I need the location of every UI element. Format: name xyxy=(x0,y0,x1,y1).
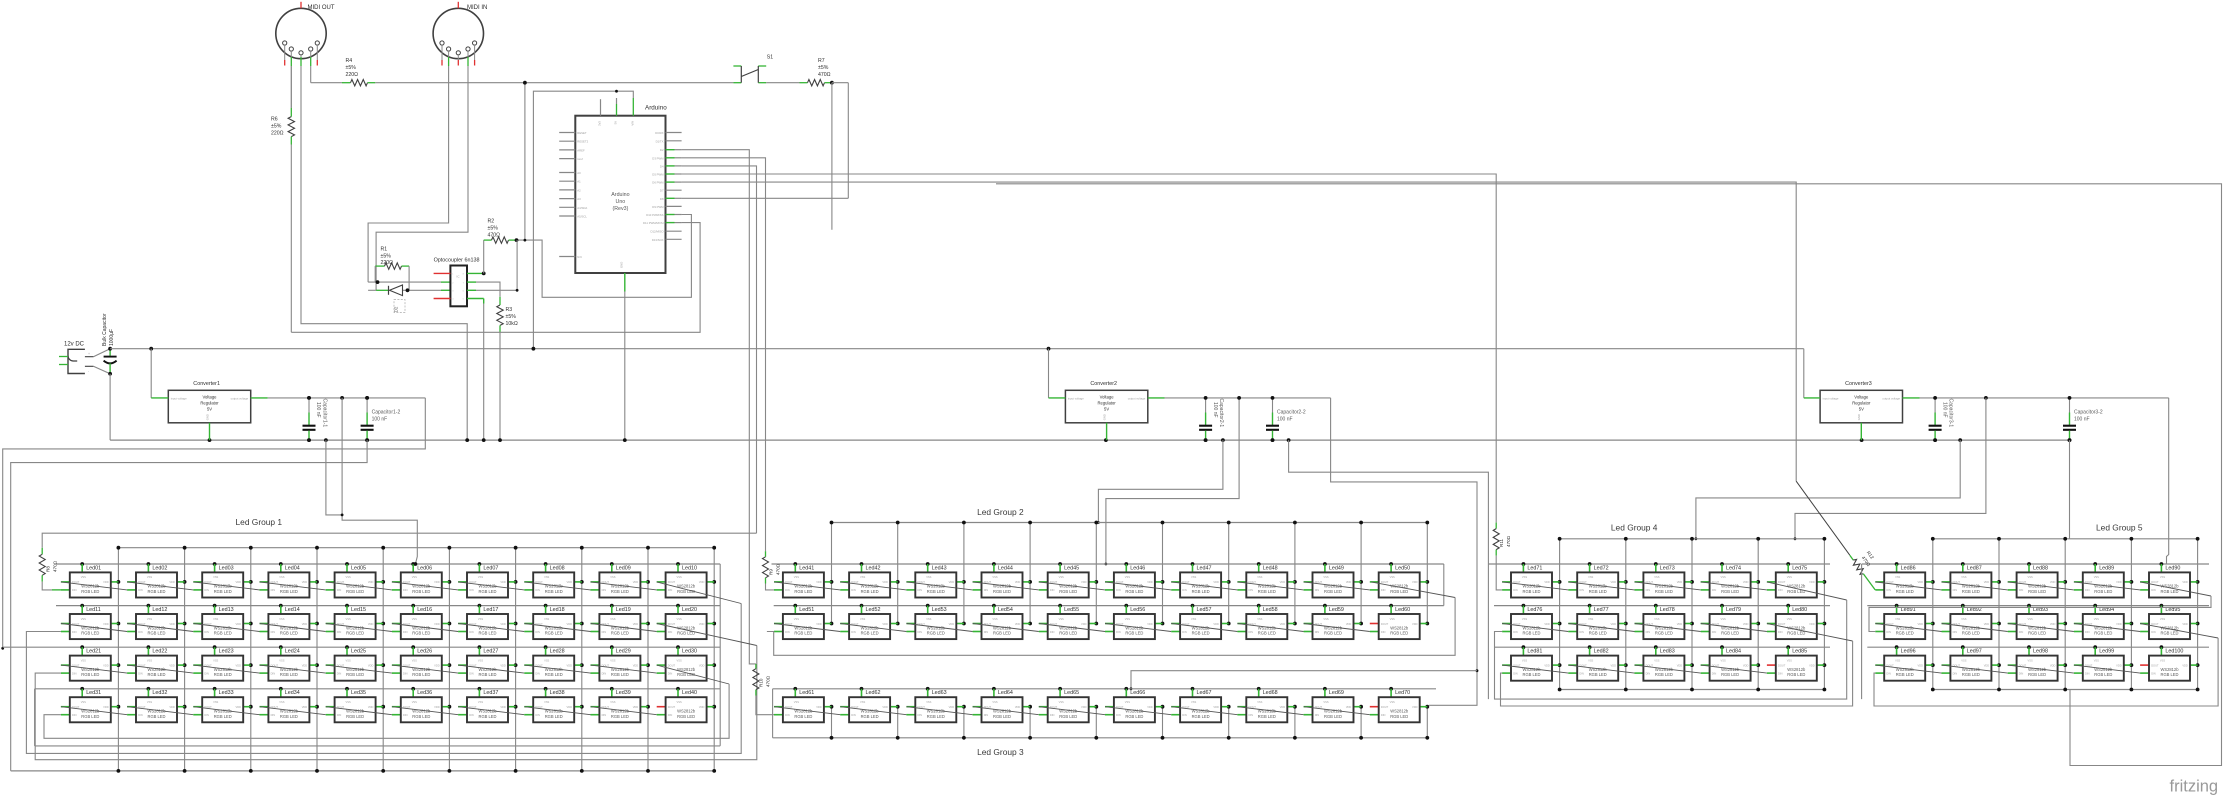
svg-text:RGB LED: RGB LED xyxy=(2094,672,2112,677)
svg-text:D1/TX: D1/TX xyxy=(656,139,664,143)
svg-text:VDD: VDD xyxy=(1147,580,1153,584)
svg-text:Voltage: Voltage xyxy=(1854,395,1869,400)
svg-text:VDD: VDD xyxy=(103,580,109,584)
svg-text:VSS: VSS xyxy=(1191,575,1196,579)
svg-text:220Ω: 220Ω xyxy=(381,260,394,266)
svg-text:Led18: Led18 xyxy=(550,607,565,613)
svg-text:DIN: DIN xyxy=(1886,671,1891,675)
svg-text:RGB LED: RGB LED xyxy=(611,589,629,594)
svg-text:VSS: VSS xyxy=(610,575,615,579)
svg-text:VSS: VSS xyxy=(610,658,615,662)
svg-text:R6: R6 xyxy=(271,117,278,123)
svg-text:5V: 5V xyxy=(614,121,618,125)
svg-text:RGB LED: RGB LED xyxy=(611,672,629,677)
svg-text:VDD: VDD xyxy=(1346,705,1352,709)
svg-text:DIN: DIN xyxy=(1953,630,1958,634)
svg-text:VDD: VDD xyxy=(699,663,705,667)
svg-text:VSS: VSS xyxy=(610,700,615,704)
svg-text:RGB LED: RGB LED xyxy=(1655,672,1673,677)
svg-text:DIN: DIN xyxy=(1953,671,1958,675)
svg-text:VDD: VDD xyxy=(1984,663,1990,667)
svg-text:±5%: ±5% xyxy=(506,314,517,320)
svg-text:Capacitor3-1: Capacitor3-1 xyxy=(1948,399,1954,428)
svg-text:VSS: VSS xyxy=(213,658,218,662)
svg-text:VDD: VDD xyxy=(1081,705,1087,709)
svg-text:DIN: DIN xyxy=(1953,588,1958,592)
svg-text:VDD: VDD xyxy=(302,705,308,709)
svg-text:VDD: VDD xyxy=(567,705,573,709)
svg-text:Led45: Led45 xyxy=(1064,565,1079,571)
svg-text:100 nF: 100 nF xyxy=(315,402,321,418)
svg-text:Capacitor2-2: Capacitor2-2 xyxy=(1277,410,1306,416)
svg-text:RGB LED: RGB LED xyxy=(346,631,364,636)
svg-text:470Ω: 470Ω xyxy=(1506,535,1511,547)
svg-text:VSS: VSS xyxy=(478,575,483,579)
svg-text:DIN: DIN xyxy=(1249,713,1254,717)
svg-text:Led15: Led15 xyxy=(351,607,366,613)
svg-text:VDD: VDD xyxy=(1544,580,1550,584)
svg-text:Led30: Led30 xyxy=(682,649,697,655)
svg-text:DIN: DIN xyxy=(668,713,673,717)
svg-text:Led21: Led21 xyxy=(86,649,101,655)
svg-text:VSS: VSS xyxy=(2027,658,2032,662)
svg-text:±5%: ±5% xyxy=(818,65,829,71)
svg-text:VSS: VSS xyxy=(1323,575,1328,579)
svg-text:Led58: Led58 xyxy=(1263,607,1278,613)
svg-text:DIN: DIN xyxy=(138,588,143,592)
svg-text:DIN: DIN xyxy=(1116,713,1121,717)
svg-text:Led06: Led06 xyxy=(417,565,432,571)
svg-text:470Ω: 470Ω xyxy=(776,563,781,575)
svg-text:DOUT: DOUT xyxy=(668,705,676,709)
svg-text:Led22: Led22 xyxy=(152,649,167,655)
svg-text:RGB LED: RGB LED xyxy=(1059,631,1077,636)
svg-text:RGB LED: RGB LED xyxy=(148,714,166,719)
svg-text:RGB LED: RGB LED xyxy=(1523,589,1541,594)
svg-text:VSS: VSS xyxy=(1125,700,1130,704)
svg-text:D8: D8 xyxy=(660,197,664,201)
svg-text:RGB LED: RGB LED xyxy=(1896,631,1914,636)
svg-text:VDD: VDD xyxy=(633,705,639,709)
svg-text:DIN: DIN xyxy=(72,588,77,592)
svg-text:D2: D2 xyxy=(660,148,664,152)
svg-text:VSS: VSS xyxy=(279,575,284,579)
svg-text:VDD: VDD xyxy=(816,622,822,626)
svg-text:VDD: VDD xyxy=(1081,580,1087,584)
svg-text:RGB LED: RGB LED xyxy=(1324,714,1342,719)
svg-text:A4/SDA: A4/SDA xyxy=(577,206,587,210)
svg-text:5V: 5V xyxy=(1104,407,1109,412)
svg-text:Led62: Led62 xyxy=(866,690,881,696)
svg-text:RGB LED: RGB LED xyxy=(545,672,563,677)
svg-text:VDD: VDD xyxy=(1346,622,1352,626)
svg-text:Led08: Led08 xyxy=(550,565,565,571)
svg-text:RGB LED: RGB LED xyxy=(214,589,232,594)
svg-text:VSS: VSS xyxy=(794,617,799,621)
svg-text:Led71: Led71 xyxy=(1527,565,1542,571)
svg-text:RGB LED: RGB LED xyxy=(479,714,497,719)
svg-text:Led65: Led65 xyxy=(1064,690,1079,696)
svg-text:DIN: DIN xyxy=(1116,630,1121,634)
svg-text:Led35: Led35 xyxy=(351,690,366,696)
svg-text:Led100: Led100 xyxy=(2165,649,2183,655)
svg-text:Arduino: Arduino xyxy=(611,192,629,198)
svg-text:Led43: Led43 xyxy=(932,565,947,571)
svg-text:DIN: DIN xyxy=(204,630,209,634)
svg-text:DIN: DIN xyxy=(2019,630,2024,634)
svg-text:VSS: VSS xyxy=(1588,575,1593,579)
svg-text:VDD: VDD xyxy=(169,580,175,584)
svg-text:VDD: VDD xyxy=(302,663,308,667)
svg-text:100 nF: 100 nF xyxy=(372,417,388,423)
svg-text:VSS: VSS xyxy=(926,617,931,621)
svg-text:Led01: Led01 xyxy=(86,565,101,571)
svg-text:VSS: VSS xyxy=(860,575,865,579)
svg-text:DIN: DIN xyxy=(1778,671,1783,675)
svg-text:DIN: DIN xyxy=(1646,671,1651,675)
svg-text:Arduino: Arduino xyxy=(645,105,667,112)
svg-text:VDD: VDD xyxy=(567,622,573,626)
svg-text:VDD: VDD xyxy=(2116,622,2122,626)
svg-text:RGB LED: RGB LED xyxy=(214,631,232,636)
svg-text:RGB LED: RGB LED xyxy=(81,714,99,719)
svg-text:RGB LED: RGB LED xyxy=(2028,589,2046,594)
svg-text:Led78: Led78 xyxy=(1660,607,1675,613)
svg-text:DIN: DIN xyxy=(785,588,790,592)
svg-text:Led33: Led33 xyxy=(219,690,234,696)
svg-text:Led79: Led79 xyxy=(1726,607,1741,613)
svg-text:VDD: VDD xyxy=(1743,622,1749,626)
svg-text:VSS: VSS xyxy=(1961,658,1966,662)
svg-text:VDD: VDD xyxy=(1015,705,1021,709)
svg-text:RGB LED: RGB LED xyxy=(545,589,563,594)
svg-text:Led05: Led05 xyxy=(351,565,366,571)
svg-text:RGB LED: RGB LED xyxy=(479,589,497,594)
svg-text:VSS: VSS xyxy=(544,700,549,704)
svg-text:R2: R2 xyxy=(488,219,495,225)
svg-text:RGB LED: RGB LED xyxy=(2161,672,2179,677)
svg-text:Led75: Led75 xyxy=(1792,565,1807,571)
svg-text:DOUT: DOUT xyxy=(1778,663,1786,667)
svg-text:Led54: Led54 xyxy=(998,607,1013,613)
svg-text:Led Group 5: Led Group 5 xyxy=(2096,523,2143,533)
svg-text:Led02: Led02 xyxy=(152,565,167,571)
svg-text:Led66: Led66 xyxy=(1130,690,1145,696)
svg-text:A1: A1 xyxy=(577,180,581,184)
svg-text:VSS: VSS xyxy=(1522,617,1527,621)
svg-text:Led70: Led70 xyxy=(1395,690,1410,696)
svg-text:RGB LED: RGB LED xyxy=(280,672,298,677)
svg-text:DIN: DIN xyxy=(602,588,607,592)
svg-text:VSS: VSS xyxy=(81,700,86,704)
svg-text:DIN: DIN xyxy=(1712,671,1717,675)
svg-text:Led25: Led25 xyxy=(351,649,366,655)
svg-text:VDD: VDD xyxy=(1213,705,1219,709)
svg-text:VSS: VSS xyxy=(213,700,218,704)
svg-text:VDD: VDD xyxy=(699,580,705,584)
svg-text:VDD: VDD xyxy=(2050,663,2056,667)
svg-text:VSS: VSS xyxy=(676,575,681,579)
svg-text:RGB LED: RGB LED xyxy=(1523,672,1541,677)
svg-text:VDD: VDD xyxy=(1984,580,1990,584)
svg-text:RGB LED: RGB LED xyxy=(1962,672,1980,677)
svg-text:D0/RX: D0/RX xyxy=(655,131,663,135)
svg-text:RGB LED: RGB LED xyxy=(677,714,695,719)
svg-text:VSS: VSS xyxy=(1654,575,1659,579)
svg-text:D2: D2 xyxy=(394,306,399,312)
svg-text:RGB LED: RGB LED xyxy=(81,631,99,636)
svg-text:DIN: DIN xyxy=(72,713,77,717)
svg-text:RGB LED: RGB LED xyxy=(927,631,945,636)
svg-text:VSS: VSS xyxy=(147,617,152,621)
svg-text:Led32: Led32 xyxy=(152,690,167,696)
svg-text:Led24: Led24 xyxy=(285,649,300,655)
svg-text:VDD: VDD xyxy=(1346,580,1352,584)
svg-text:DIN: DIN xyxy=(918,713,923,717)
svg-text:RGB LED: RGB LED xyxy=(479,672,497,677)
svg-text:DIN: DIN xyxy=(602,671,607,675)
svg-text:±5%: ±5% xyxy=(346,65,357,71)
svg-text:VDD: VDD xyxy=(1147,705,1153,709)
svg-text:DIN: DIN xyxy=(1778,630,1783,634)
svg-text:VSS: VSS xyxy=(1257,575,1262,579)
svg-text:VDD: VDD xyxy=(1677,580,1683,584)
svg-text:VDD: VDD xyxy=(236,580,242,584)
svg-text:(Rev3): (Rev3) xyxy=(612,206,628,212)
svg-text:Led34: Led34 xyxy=(285,690,300,696)
svg-text:VDD: VDD xyxy=(434,705,440,709)
svg-text:DIN: DIN xyxy=(271,630,276,634)
svg-text:RGB LED: RGB LED xyxy=(1390,589,1408,594)
svg-text:RGB LED: RGB LED xyxy=(1655,631,1673,636)
svg-text:DIN: DIN xyxy=(204,671,209,675)
svg-text:VIN: VIN xyxy=(630,121,634,126)
svg-text:VSS: VSS xyxy=(81,617,86,621)
svg-text:+: + xyxy=(88,352,90,356)
svg-text:DIN: DIN xyxy=(1646,588,1651,592)
svg-text:DIN: DIN xyxy=(1513,671,1518,675)
svg-text:VDD: VDD xyxy=(1213,622,1219,626)
svg-text:Led83: Led83 xyxy=(1660,649,1675,655)
svg-text:RGB LED: RGB LED xyxy=(1192,714,1210,719)
svg-text:RGB LED: RGB LED xyxy=(2161,631,2179,636)
svg-text:DIN: DIN xyxy=(668,630,673,634)
svg-text:RGB LED: RGB LED xyxy=(2028,672,2046,677)
svg-text:DIN: DIN xyxy=(535,671,540,675)
svg-text:RESET: RESET xyxy=(577,131,587,135)
svg-text:RGB LED: RGB LED xyxy=(1589,672,1607,677)
svg-text:VSS: VSS xyxy=(213,617,218,621)
svg-text:R4: R4 xyxy=(346,58,353,64)
svg-text:VDD: VDD xyxy=(1015,580,1021,584)
svg-text:Led80: Led80 xyxy=(1792,607,1807,613)
svg-text:N/C: N/C xyxy=(577,255,582,259)
svg-text:±5%: ±5% xyxy=(488,226,499,232)
svg-text:D10 PWM/SS: D10 PWM/SS xyxy=(646,213,663,217)
svg-text:VSS: VSS xyxy=(1059,700,1064,704)
svg-text:R10: R10 xyxy=(759,678,764,687)
svg-text:Led10: Led10 xyxy=(682,565,697,571)
svg-text:R8: R8 xyxy=(46,566,51,572)
svg-text:VDD: VDD xyxy=(567,663,573,667)
svg-text:VSS: VSS xyxy=(1390,700,1395,704)
svg-text:DIN: DIN xyxy=(1579,630,1584,634)
svg-text:Led44: Led44 xyxy=(998,565,1013,571)
svg-text:DIN: DIN xyxy=(535,713,540,717)
svg-text:VDD: VDD xyxy=(1213,580,1219,584)
svg-text:DOUT: DOUT xyxy=(1381,622,1389,626)
svg-text:DIN: DIN xyxy=(851,713,856,717)
svg-text:output voltage: output voltage xyxy=(1128,397,1146,401)
svg-text:VSS: VSS xyxy=(345,617,350,621)
svg-text:RGB LED: RGB LED xyxy=(1192,589,1210,594)
svg-text:Optocoupler 6n138: Optocoupler 6n138 xyxy=(434,258,480,264)
svg-text:S1: S1 xyxy=(767,55,773,61)
svg-text:RESET2: RESET2 xyxy=(577,140,588,144)
svg-text:DIN: DIN xyxy=(403,588,408,592)
svg-text:VSS: VSS xyxy=(2027,575,2032,579)
svg-text:RGB LED: RGB LED xyxy=(794,631,812,636)
svg-text:Led17: Led17 xyxy=(483,607,498,613)
svg-text:VSS: VSS xyxy=(1895,575,1900,579)
svg-text:Led04: Led04 xyxy=(285,565,300,571)
svg-text:VSS: VSS xyxy=(860,617,865,621)
svg-text:DIN: DIN xyxy=(1249,630,1254,634)
svg-text:DIN: DIN xyxy=(535,588,540,592)
svg-text:D7: D7 xyxy=(660,189,664,193)
svg-text:RGB LED: RGB LED xyxy=(148,589,166,594)
svg-text:VDD: VDD xyxy=(633,622,639,626)
svg-text:±5%: ±5% xyxy=(381,254,392,260)
svg-text:Led Group 1: Led Group 1 xyxy=(236,517,283,527)
svg-text:Led07: Led07 xyxy=(483,565,498,571)
svg-text:Led37: Led37 xyxy=(483,690,498,696)
svg-text:Led77: Led77 xyxy=(1594,607,1609,613)
svg-text:VDD: VDD xyxy=(169,622,175,626)
svg-text:VSS: VSS xyxy=(279,700,284,704)
svg-text:DIN: DIN xyxy=(469,588,474,592)
svg-text:RGB LED: RGB LED xyxy=(412,631,430,636)
svg-text:RGB LED: RGB LED xyxy=(2028,631,2046,636)
svg-text:VDD: VDD xyxy=(236,622,242,626)
svg-text:RGB LED: RGB LED xyxy=(611,714,629,719)
svg-text:VDD: VDD xyxy=(368,663,374,667)
svg-text:DIN: DIN xyxy=(337,630,342,634)
svg-text:Led36: Led36 xyxy=(417,690,432,696)
svg-text:DIN: DIN xyxy=(668,588,673,592)
svg-text:Led19: Led19 xyxy=(616,607,631,613)
svg-text:A2: A2 xyxy=(577,188,581,192)
svg-text:VSS: VSS xyxy=(1191,617,1196,621)
svg-text:Led29: Led29 xyxy=(616,649,631,655)
svg-text:VDD: VDD xyxy=(1918,622,1924,626)
svg-text:10kΩ: 10kΩ xyxy=(506,321,518,327)
svg-text:VSS: VSS xyxy=(2160,617,2165,621)
svg-text:DIN: DIN xyxy=(1315,630,1320,634)
svg-text:DIN: DIN xyxy=(469,630,474,634)
svg-text:DIN: DIN xyxy=(1182,588,1187,592)
svg-text:VDD: VDD xyxy=(1611,622,1617,626)
svg-text:Led Group 2: Led Group 2 xyxy=(977,507,1024,517)
svg-text:RGB LED: RGB LED xyxy=(412,672,430,677)
svg-text:Regulator: Regulator xyxy=(1852,401,1871,406)
svg-text:220Ω: 220Ω xyxy=(346,72,359,78)
svg-text:DIN: DIN xyxy=(204,713,209,717)
svg-text:VSS: VSS xyxy=(860,700,865,704)
svg-text:VSS: VSS xyxy=(147,700,152,704)
svg-text:RGB LED: RGB LED xyxy=(1125,714,1143,719)
svg-text:±5%: ±5% xyxy=(271,124,282,130)
svg-text:VDD: VDD xyxy=(2116,663,2122,667)
svg-text:RGB LED: RGB LED xyxy=(1962,589,1980,594)
svg-text:Led14: Led14 xyxy=(285,607,300,613)
svg-text:VSS: VSS xyxy=(1390,617,1395,621)
svg-text:VSS: VSS xyxy=(81,658,86,662)
svg-text:Led69: Led69 xyxy=(1329,690,1344,696)
svg-text:DIN: DIN xyxy=(337,588,342,592)
svg-text:DOUT: DOUT xyxy=(1381,705,1389,709)
svg-text:VSS: VSS xyxy=(1654,658,1659,662)
svg-text:RGB LED: RGB LED xyxy=(1192,631,1210,636)
svg-text:Led31: Led31 xyxy=(86,690,101,696)
svg-text:DIN: DIN xyxy=(1315,588,1320,592)
svg-text:DIN: DIN xyxy=(204,588,209,592)
svg-text:DIN: DIN xyxy=(1050,713,1055,717)
svg-text:5V: 5V xyxy=(207,407,212,412)
svg-text:VDD: VDD xyxy=(1984,622,1990,626)
svg-text:Capacitor1-1: Capacitor1-1 xyxy=(322,399,328,428)
svg-text:Regulator: Regulator xyxy=(200,401,219,406)
svg-text:GND: GND xyxy=(620,262,624,268)
svg-text:VDD: VDD xyxy=(882,705,888,709)
svg-text:AREF: AREF xyxy=(577,148,585,152)
svg-text:Capacitor1-2: Capacitor1-2 xyxy=(372,410,401,416)
svg-text:Led38: Led38 xyxy=(550,690,565,696)
svg-text:RGB LED: RGB LED xyxy=(1390,631,1408,636)
svg-text:VSS: VSS xyxy=(610,617,615,621)
svg-text:Led27: Led27 xyxy=(483,649,498,655)
svg-text:100 nF: 100 nF xyxy=(2074,417,2090,423)
svg-text:VDD: VDD xyxy=(1412,580,1418,584)
svg-text:VDD: VDD xyxy=(169,663,175,667)
svg-text:VSS: VSS xyxy=(1588,658,1593,662)
svg-text:DIN: DIN xyxy=(1712,588,1717,592)
svg-text:DIN: DIN xyxy=(337,713,342,717)
svg-text:RGB LED: RGB LED xyxy=(280,589,298,594)
svg-text:Led49: Led49 xyxy=(1329,565,1344,571)
svg-text:DOUT: DOUT xyxy=(2151,580,2159,584)
svg-text:VDD: VDD xyxy=(1015,622,1021,626)
svg-text:DIN: DIN xyxy=(1182,630,1187,634)
svg-text:RGB LED: RGB LED xyxy=(214,714,232,719)
svg-text:VSS: VSS xyxy=(1257,700,1262,704)
svg-text:DIN: DIN xyxy=(1513,588,1518,592)
svg-text:RGB LED: RGB LED xyxy=(1059,589,1077,594)
svg-text:Led64: Led64 xyxy=(998,690,1013,696)
svg-text:Led12: Led12 xyxy=(152,607,167,613)
svg-text:VDD: VDD xyxy=(567,580,573,584)
svg-text:VSS: VSS xyxy=(926,700,931,704)
svg-text:470Ω: 470Ω xyxy=(53,560,58,572)
svg-text:Regulator: Regulator xyxy=(1098,401,1117,406)
svg-text:VDD: VDD xyxy=(368,622,374,626)
svg-text:RGB LED: RGB LED xyxy=(794,714,812,719)
svg-text:Led52: Led52 xyxy=(866,607,881,613)
svg-text:RGB LED: RGB LED xyxy=(1125,589,1143,594)
svg-text:Led67: Led67 xyxy=(1197,690,1212,696)
svg-text:D4: D4 xyxy=(660,164,664,168)
svg-text:VDD: VDD xyxy=(1412,622,1418,626)
